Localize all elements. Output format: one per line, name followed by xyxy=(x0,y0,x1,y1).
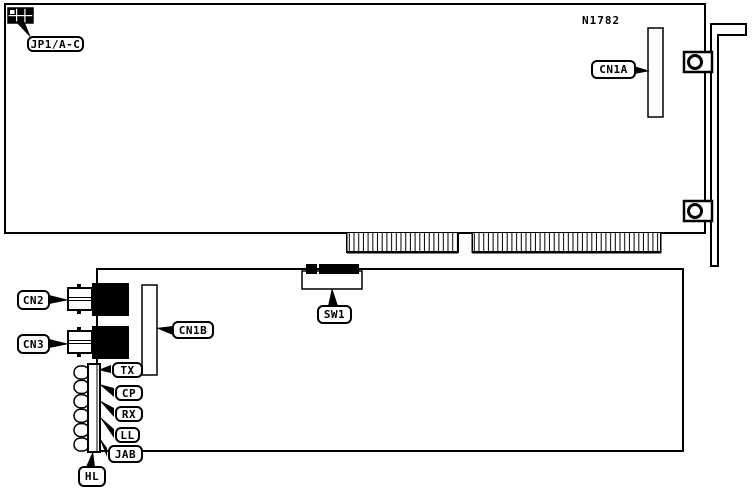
callout-cn1b: CN1B xyxy=(172,321,214,339)
cn3-barrel xyxy=(68,331,92,353)
mounting-bracket xyxy=(711,24,746,266)
callout-jp1: JP1/A-C xyxy=(27,36,84,52)
led-6 xyxy=(74,438,89,451)
callout-hl: HL xyxy=(78,466,106,487)
led-3 xyxy=(74,395,89,408)
led-holder-strip xyxy=(88,364,100,452)
isa-edge-connector-8bit xyxy=(346,233,459,254)
circuit-board-diagram: N1782 JP1/A-C CN1A CN2 CN3 CN1B SW1 TX C… xyxy=(0,0,752,489)
isa-edge-connector-16bit xyxy=(472,233,662,254)
bracket-screw-tab-top xyxy=(684,52,712,72)
pointer-hl xyxy=(86,451,95,467)
dip-switch-sw1 xyxy=(302,264,362,289)
callout-cp: CP xyxy=(115,385,143,401)
callout-cn1a: CN1A xyxy=(591,60,636,79)
cn2-body xyxy=(92,283,129,316)
pointer-cn2 xyxy=(49,295,69,304)
callout-jab: JAB xyxy=(108,445,143,463)
screw-hole-icon xyxy=(689,205,702,218)
part-number-text: N1782 xyxy=(582,14,620,27)
lower-board xyxy=(97,269,683,451)
callout-cn2: CN2 xyxy=(17,290,50,310)
led-1 xyxy=(74,366,89,379)
led-stack xyxy=(74,364,100,452)
callout-sw1: SW1 xyxy=(317,305,352,324)
led-2 xyxy=(74,380,89,393)
led-4 xyxy=(74,409,89,422)
pointer-cn3 xyxy=(49,339,69,348)
callout-rx: RX xyxy=(115,406,143,422)
cn3-body xyxy=(92,326,129,359)
callout-ll: LL xyxy=(115,427,140,443)
led-5 xyxy=(74,424,89,437)
cn2-barrel xyxy=(68,288,92,310)
bracket-screw-tab-bottom xyxy=(684,201,712,221)
callout-cn3: CN3 xyxy=(17,334,50,354)
connector-cn1a xyxy=(648,28,663,117)
upper-board xyxy=(5,4,705,233)
bnc-connector-cn3 xyxy=(68,326,129,359)
screw-hole-icon xyxy=(689,56,702,69)
bnc-connector-cn2 xyxy=(68,283,129,316)
jumper-block-jp1 xyxy=(8,8,33,23)
diagram-linework xyxy=(0,0,752,489)
connector-cn1b xyxy=(142,285,157,375)
callout-tx: TX xyxy=(112,362,143,378)
